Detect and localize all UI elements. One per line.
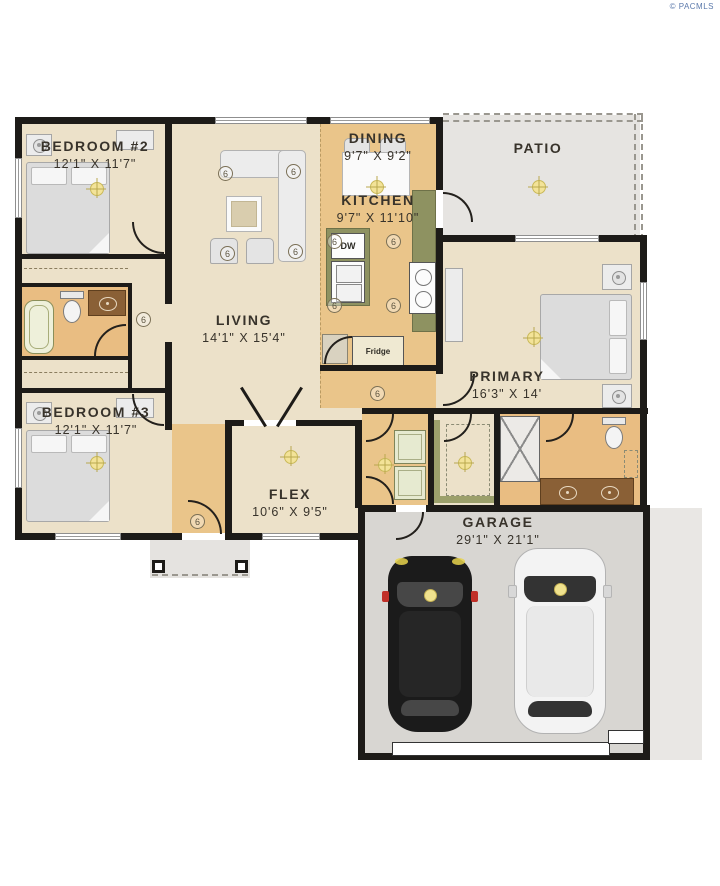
sliding-door <box>515 235 599 242</box>
room-dims: 12'1" X 11'7" <box>22 423 170 437</box>
bath-vanity <box>88 290 126 316</box>
bathtub <box>24 300 54 354</box>
room-name: DINING <box>322 130 434 146</box>
ceiling-light-icon <box>458 456 472 470</box>
ceiling-marker: 6 <box>327 234 342 249</box>
ceiling-light-icon <box>284 450 298 464</box>
room-label-patio: PATIO <box>478 140 598 156</box>
ceiling-light-icon <box>378 458 392 472</box>
room-label-flex: FLEX 10'6" X 9'5" <box>228 486 352 519</box>
pillow <box>609 300 627 336</box>
bed-icon <box>26 162 110 254</box>
wall-segment <box>436 242 443 374</box>
floor-transition <box>320 124 321 365</box>
dryer <box>394 466 426 500</box>
patio-roofline <box>443 120 643 122</box>
wall-segment <box>128 287 132 388</box>
ceiling-marker: 6 <box>218 166 233 181</box>
porch-post <box>235 560 248 573</box>
ceiling-marker: 6 <box>386 298 401 313</box>
door-opening <box>184 533 224 540</box>
room-name: FLEX <box>228 486 352 502</box>
linen-shelf <box>624 450 638 478</box>
room-name: PRIMARY <box>442 368 572 384</box>
wall-segment <box>362 408 648 414</box>
lamp-icon <box>612 271 626 285</box>
rear-window <box>528 701 592 718</box>
window <box>330 117 430 124</box>
wall-segment <box>15 254 170 259</box>
sink-basin <box>336 265 362 283</box>
toilet-icon <box>602 417 626 425</box>
pillow <box>71 435 107 453</box>
room-dims: 9'7" X 9'2" <box>322 149 434 163</box>
ceiling-marker: 6 <box>136 312 151 327</box>
car-roof <box>399 611 461 697</box>
room-name: PATIO <box>478 140 598 156</box>
room-name: BEDROOM #2 <box>24 138 166 154</box>
garage-step <box>608 730 644 744</box>
shower <box>500 416 540 482</box>
coffee-table <box>226 196 262 232</box>
ceiling-light-icon <box>532 180 546 194</box>
closet-rod <box>24 268 128 269</box>
room-name: BEDROOM #3 <box>22 404 170 420</box>
refrigerator: Fridge <box>352 336 404 366</box>
table-top <box>231 201 257 227</box>
ceiling-marker: 6 <box>327 298 342 313</box>
patio-roofline <box>443 113 643 115</box>
floor-plan: © PACMLS <box>0 0 720 886</box>
ceiling-marker: 6 <box>370 386 385 401</box>
ceiling-light-icon <box>527 331 541 345</box>
ceiling-marker: 6 <box>220 246 235 261</box>
toilet-icon <box>60 291 84 299</box>
toilet-icon <box>63 300 81 323</box>
window <box>640 282 647 340</box>
room-label-garage: GARAGE 29'1" X 21'1" <box>418 514 578 547</box>
wall-segment <box>643 505 650 760</box>
wall-segment <box>15 356 132 360</box>
pillow <box>31 435 67 453</box>
ceiling-marker: 6 <box>286 164 301 179</box>
blanket-fold <box>89 233 109 253</box>
floor-transition <box>320 371 321 408</box>
room-dims: 10'6" X 9'5" <box>228 505 352 519</box>
window <box>215 117 307 124</box>
room-label-bedroom3: BEDROOM #3 12'1" X 11'7" <box>22 404 170 437</box>
room-dims: 29'1" X 21'1" <box>418 533 578 547</box>
sink-icon <box>99 297 117 311</box>
window <box>15 158 22 218</box>
nightstand <box>602 264 632 290</box>
side-mirror <box>603 585 612 598</box>
room-label-primary: PRIMARY 16'3" X 14' <box>442 368 572 401</box>
armchair <box>246 238 274 264</box>
white-car <box>514 548 606 734</box>
room-name: GARAGE <box>418 514 578 530</box>
garage-door <box>392 742 610 756</box>
headlight-icon <box>452 558 465 565</box>
lamp-icon <box>612 390 626 404</box>
side-mirror <box>471 591 478 602</box>
room-dims: 14'1" X 15'4" <box>178 331 310 345</box>
closet-rod <box>24 372 128 373</box>
side-walkway <box>650 508 702 760</box>
room-label-living: LIVING 14'1" X 15'4" <box>178 312 310 345</box>
wall-segment <box>15 388 170 393</box>
door-opening <box>396 505 426 512</box>
room-name: LIVING <box>178 312 310 328</box>
wall-segment <box>320 365 443 371</box>
headlight-icon <box>395 558 408 565</box>
porch-edge <box>152 574 248 576</box>
room-name: KITCHEN <box>318 192 438 208</box>
room-label-bedroom2: BEDROOM #2 12'1" X 11'7" <box>24 138 166 171</box>
dresser <box>445 268 463 342</box>
blanket-fold <box>89 501 109 521</box>
window <box>15 428 22 488</box>
window <box>55 533 121 540</box>
toilet-icon <box>605 426 623 449</box>
door-opening <box>244 420 296 426</box>
window <box>262 533 320 540</box>
patio-roofline <box>634 114 636 240</box>
wic-shelf <box>434 496 494 503</box>
kitchen-sink <box>331 261 365 303</box>
room-dims: 9'7" X 11'10" <box>318 211 438 225</box>
patio-roofline <box>641 114 643 240</box>
range-stove <box>409 262 436 314</box>
room-dims: 12'1" X 11'7" <box>24 157 166 171</box>
wall-segment <box>165 124 172 304</box>
washer <box>394 430 426 464</box>
room-label-dining: DINING 9'7" X 9'2" <box>322 130 434 163</box>
sink-icon <box>601 486 619 500</box>
wall-segment <box>355 420 362 508</box>
wall-segment <box>494 414 500 508</box>
nightstand <box>602 384 632 408</box>
ceiling-light-icon <box>90 182 104 196</box>
ceiling-light-icon <box>90 456 104 470</box>
black-car <box>388 556 472 732</box>
burner <box>415 291 432 308</box>
watermark: © PACMLS <box>670 2 714 11</box>
ceiling-marker: 6 <box>288 244 303 259</box>
side-mirror <box>382 591 389 602</box>
pillow <box>609 338 627 374</box>
bed-icon <box>26 430 110 522</box>
side-mirror <box>508 585 517 598</box>
wall-segment <box>15 283 132 287</box>
wic-shelf <box>434 420 440 502</box>
wall-segment <box>428 414 434 508</box>
fridge-label: Fridge <box>366 347 390 356</box>
ceiling-marker: 6 <box>386 234 401 249</box>
car-roof <box>526 606 594 697</box>
rear-window <box>401 700 460 716</box>
sink-icon <box>559 486 577 500</box>
ceiling-marker: 6 <box>190 514 205 529</box>
wall-segment <box>358 505 365 760</box>
burner <box>415 269 432 286</box>
room-dims: 16'3" X 14' <box>442 387 572 401</box>
porch-post <box>152 560 165 573</box>
room-label-kitchen: KITCHEN 9'7" X 11'10" <box>318 192 438 225</box>
double-vanity <box>540 478 634 505</box>
